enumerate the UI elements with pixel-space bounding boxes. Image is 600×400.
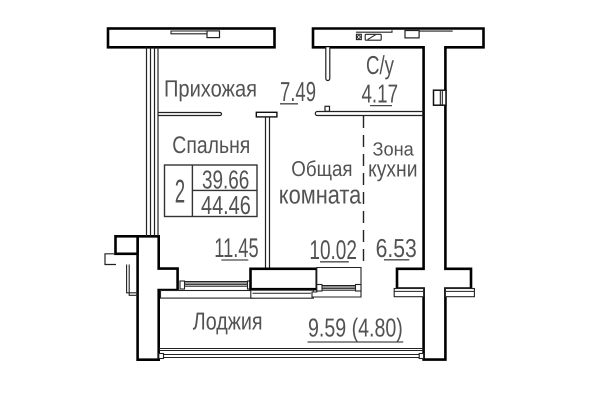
svg-text:Спальня: Спальня bbox=[172, 132, 250, 159]
svg-text:комната: комната bbox=[279, 180, 362, 210]
svg-text:кухни: кухни bbox=[368, 155, 417, 181]
svg-text:Лоджия: Лоджия bbox=[193, 308, 263, 335]
svg-text:Прихожая: Прихожая bbox=[164, 76, 257, 102]
svg-text:6.53: 6.53 bbox=[376, 233, 417, 263]
svg-text:4.17: 4.17 bbox=[362, 79, 399, 109]
svg-text:9.59 (4.80): 9.59 (4.80) bbox=[308, 313, 403, 343]
svg-text:7.49: 7.49 bbox=[280, 76, 316, 107]
svg-text:10.02: 10.02 bbox=[309, 235, 357, 265]
svg-text:Общая: Общая bbox=[291, 157, 352, 181]
svg-text:11.45: 11.45 bbox=[214, 233, 258, 263]
svg-text:44.46: 44.46 bbox=[201, 190, 251, 220]
svg-text:С/у: С/у bbox=[366, 50, 394, 80]
svg-text:2: 2 bbox=[175, 173, 185, 210]
